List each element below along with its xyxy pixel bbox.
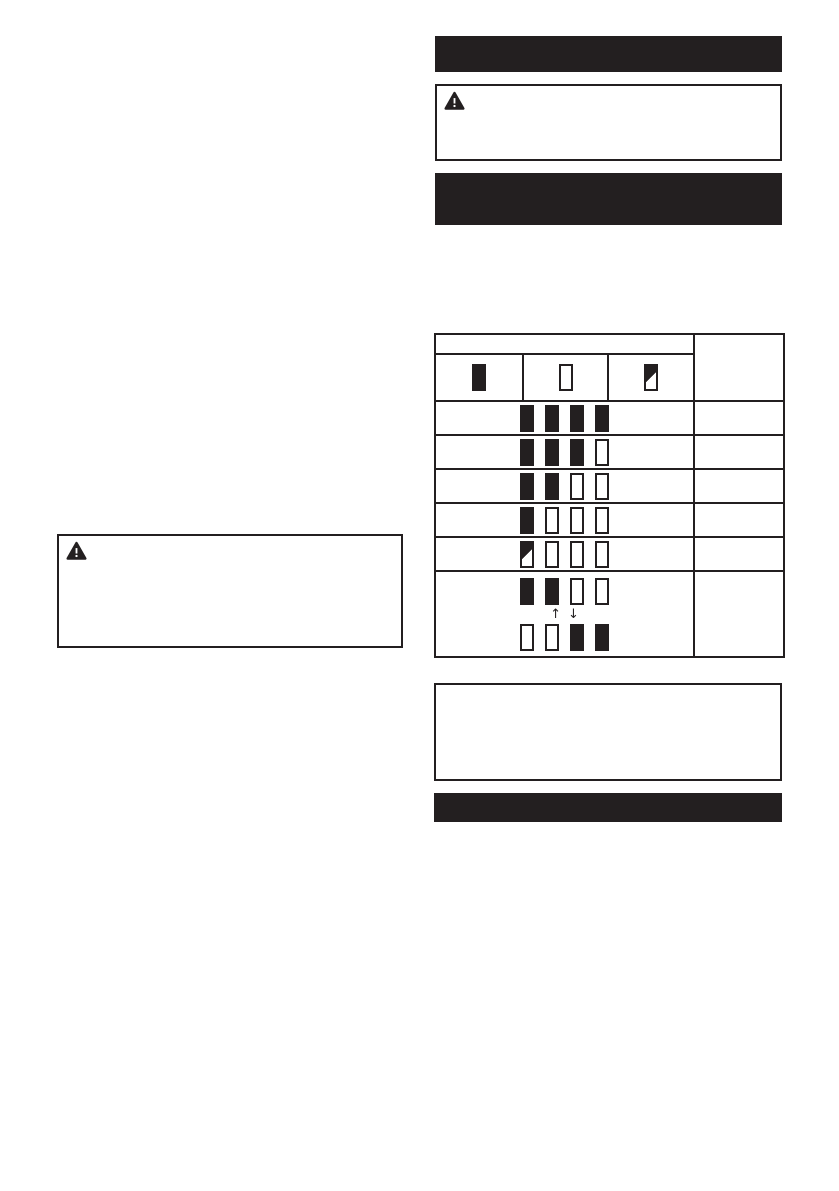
section-header-bar-top — [435, 36, 782, 72]
indicator-lamp-off — [570, 473, 584, 500]
lamp-row — [436, 507, 693, 534]
arrow-down-icon: ↓ — [568, 608, 579, 621]
arrow-up-icon: ↑ — [550, 608, 561, 621]
indicator-row-cell — [435, 401, 694, 435]
indicator-lamp-lighted — [595, 405, 609, 432]
indicator-row-cell — [435, 503, 694, 537]
lamp-row-top — [520, 578, 609, 605]
lamp-row — [436, 473, 693, 500]
section-header-bar-middle — [435, 173, 782, 225]
indicator-lamp-lighted — [570, 439, 584, 466]
indicator-lamp-lighted — [520, 473, 534, 500]
indicator-row-cell-transition: ↑ ↓ — [435, 571, 694, 657]
indicator-lamp-lighted — [595, 624, 609, 651]
lamp-symbol-off — [559, 364, 573, 391]
indicator-row-cell — [435, 469, 694, 503]
lamp-symbol-blinking — [644, 364, 658, 391]
indicator-lamp-lighted — [570, 624, 584, 651]
indicator-lamp-off — [595, 473, 609, 500]
indicator-table-title-cell — [435, 334, 694, 354]
indicator-lamp-lighted — [545, 473, 559, 500]
legend-cell-off — [523, 354, 608, 401]
indicator-lamp-lighted — [545, 405, 559, 432]
lamp-row — [436, 439, 693, 466]
manual-page: ↑ ↓ — [0, 0, 839, 1191]
note-box — [434, 683, 782, 781]
indicator-row-cell — [435, 435, 694, 469]
indicator-lamp-lighted — [545, 578, 559, 605]
legend-cell-blinking — [608, 354, 694, 401]
indicator-lamp-off — [520, 624, 534, 651]
legend-cell-lighted — [435, 354, 523, 401]
indicator-lamp-off — [545, 624, 559, 651]
indicator-lamp-off — [595, 439, 609, 466]
indicator-lamp-blinking — [520, 541, 534, 568]
lamp-row — [436, 541, 693, 568]
indicator-lamp-off — [545, 507, 559, 534]
warning-icon — [444, 91, 465, 111]
indicator-lamp-off — [570, 541, 584, 568]
indicator-lamp-lighted — [520, 405, 534, 432]
capacity-value-cell — [694, 401, 784, 435]
lamp-row-bottom — [520, 624, 609, 651]
remaining-capacity-header-cell — [694, 334, 784, 401]
indicator-lamp-off — [570, 507, 584, 534]
transition-arrows: ↑ ↓ — [550, 608, 579, 621]
indicator-lamp-lighted — [570, 405, 584, 432]
capacity-value-cell — [694, 469, 784, 503]
warning-box-left — [57, 534, 403, 648]
indicator-lamp-lighted — [520, 507, 534, 534]
indicator-lamp-lighted — [520, 578, 534, 605]
indicator-lamp-lighted — [545, 439, 559, 466]
capacity-value-cell — [694, 503, 784, 537]
warning-box-right — [435, 84, 782, 161]
lamp-transition-stack: ↑ ↓ — [436, 572, 693, 656]
capacity-value-cell — [694, 435, 784, 469]
capacity-value-cell — [694, 571, 784, 657]
indicator-row-cell — [435, 537, 694, 571]
lamp-symbol-lighted — [472, 364, 486, 391]
battery-indicator-table: ↑ ↓ — [434, 333, 785, 658]
indicator-lamp-off — [595, 507, 609, 534]
indicator-lamp-off — [595, 578, 609, 605]
indicator-lamp-off — [595, 541, 609, 568]
indicator-lamp-off — [570, 578, 584, 605]
capacity-value-cell — [694, 537, 784, 571]
indicator-lamp-off — [545, 541, 559, 568]
lamp-row — [436, 405, 693, 432]
indicator-lamp-lighted — [520, 439, 534, 466]
section-header-bar-bottom — [434, 793, 782, 822]
warning-icon — [66, 541, 87, 561]
